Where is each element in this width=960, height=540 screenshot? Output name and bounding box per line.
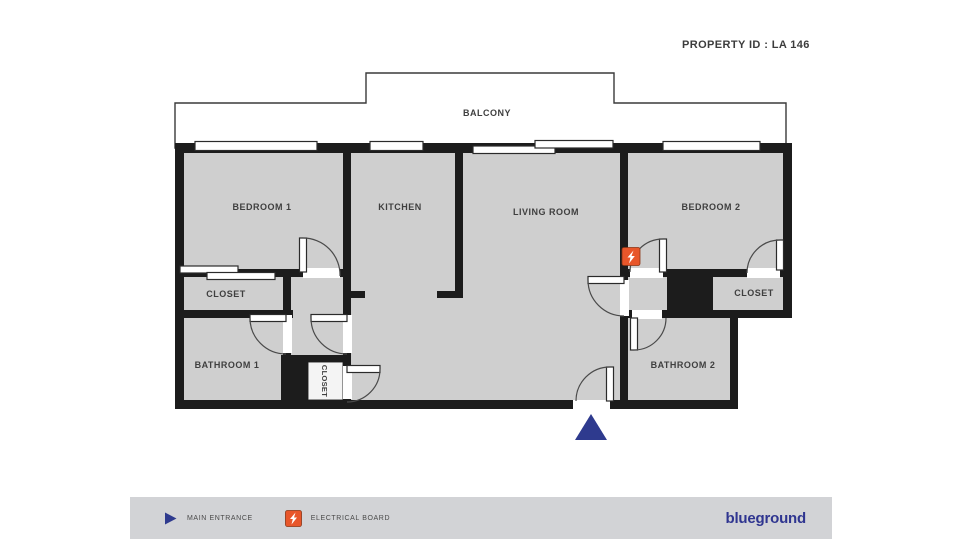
electrical-board-legend-icon: [285, 510, 302, 527]
blueground-logo: blueground: [726, 510, 807, 527]
floor-plan-page: PROPERTY ID : LA 146: [0, 0, 960, 540]
shaft-left: [281, 356, 308, 403]
shaft-right: [667, 272, 713, 317]
room-label-bedroom1: BEDROOM 1: [232, 202, 291, 212]
electrical-board-icon: [622, 248, 640, 266]
room-label-bathroom1: BATHROOM 1: [195, 360, 260, 370]
legend-electrical-board: ELECTRICAL BOARD: [285, 510, 390, 527]
legend-electrical-board-label: ELECTRICAL BOARD: [311, 515, 390, 522]
legend-main-entrance-label: MAIN ENTRANCE: [187, 515, 253, 522]
legend-bar: MAIN ENTRANCE ELECTRICAL BOARD bluegroun…: [130, 497, 832, 539]
main-entrance-marker-icon: [575, 414, 607, 440]
room-label-balcony: BALCONY: [463, 108, 511, 118]
room-label-kitchen: KITCHEN: [378, 202, 422, 212]
room-label-bedroom2: BEDROOM 2: [681, 202, 740, 212]
floor-plan: BALCONY BEDROOM 1 KITCHEN LIVING ROOM BE…: [0, 0, 960, 540]
room-label-bathroom2: BATHROOM 2: [651, 360, 716, 370]
room-label-living-room: LIVING ROOM: [513, 207, 579, 217]
window-kitchen: [370, 142, 423, 151]
main-entrance-icon: [163, 511, 178, 526]
room-label-closet1: CLOSET: [206, 289, 246, 299]
window-bedroom2: [663, 142, 760, 151]
closet1-sliding-door: [207, 273, 275, 280]
room-label-hall-closet: CLOSET: [320, 365, 329, 397]
room-label-closet2: CLOSET: [734, 288, 774, 298]
sliding-balcony-door-upper: [535, 141, 613, 149]
window-bedroom1: [195, 142, 317, 151]
legend-main-entrance: MAIN ENTRANCE: [163, 511, 253, 526]
